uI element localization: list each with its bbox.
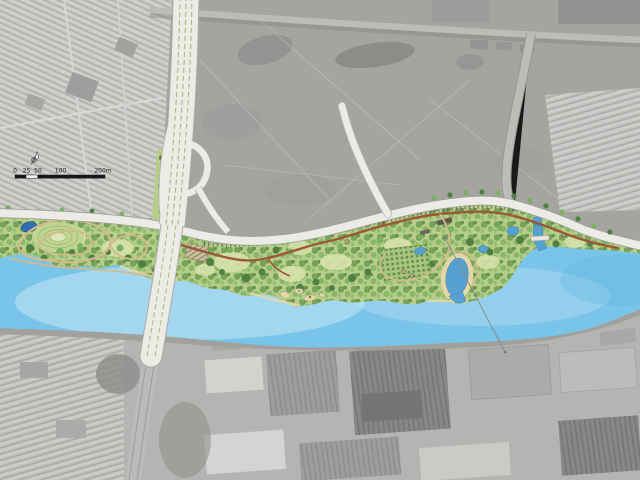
global-grain: [0, 0, 640, 480]
masterplan-canvas: 0 25 50 100 200m: [0, 0, 640, 480]
masterplan-map: 0 25 50 100 200m: [0, 0, 640, 480]
